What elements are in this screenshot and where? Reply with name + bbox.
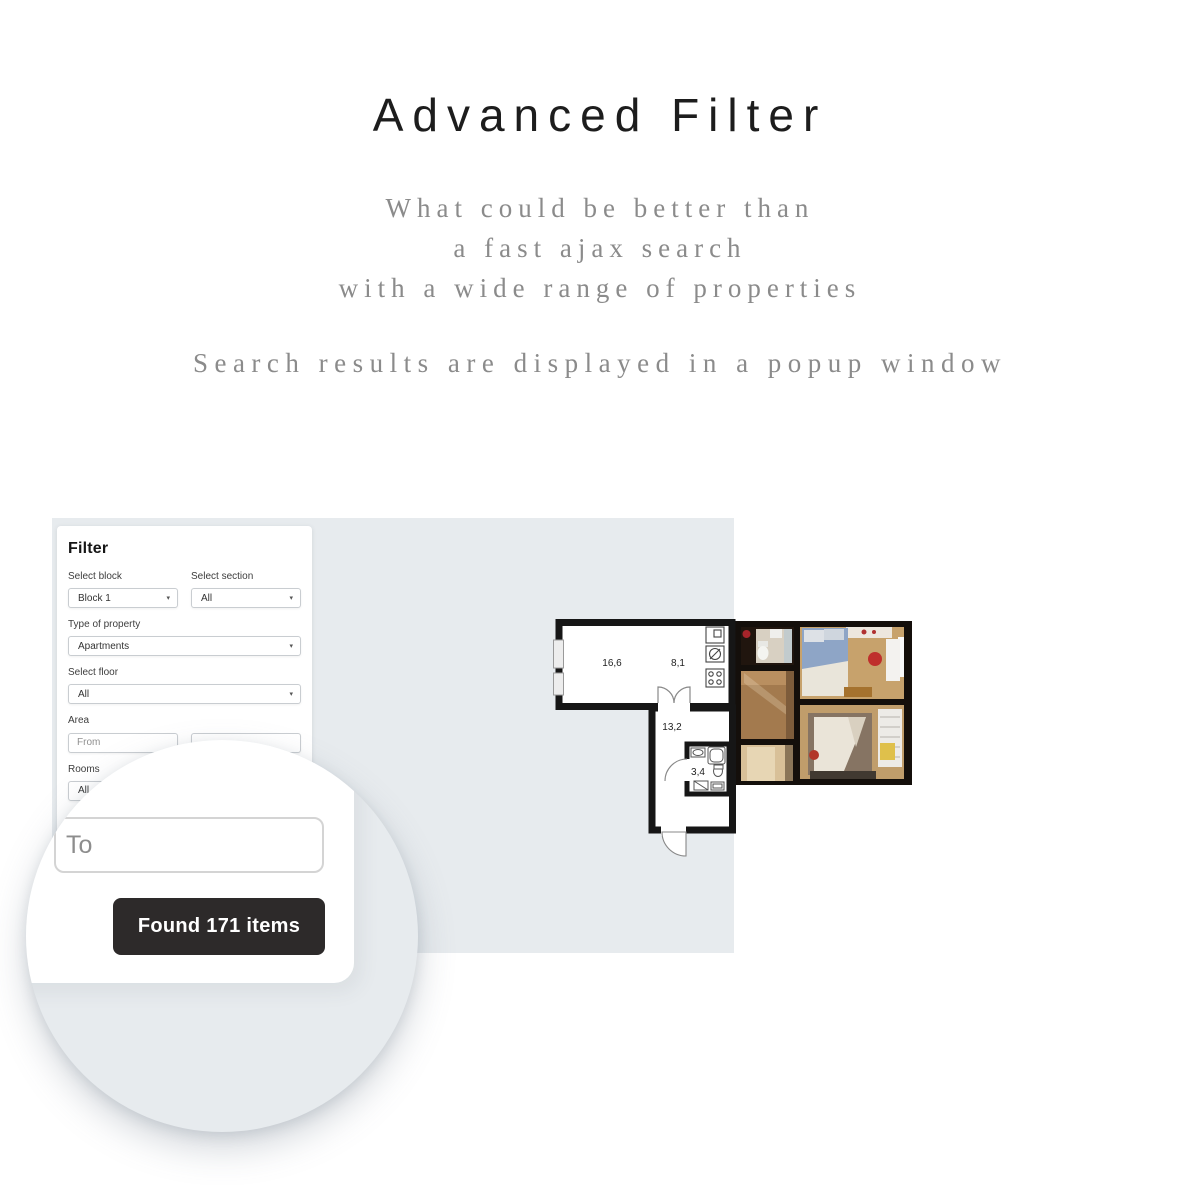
select-floor-dropdown[interactable]: All ▾ <box>68 684 301 704</box>
floorplan-drawn-section <box>554 623 733 857</box>
field-select-floor: Select floor All ▾ <box>68 667 301 704</box>
hero-subtitle-line: with a wide range of properties <box>0 268 1200 308</box>
living-room-area-label: 16,6 <box>602 658 622 669</box>
found-items-button[interactable]: Found 171 items <box>113 898 325 955</box>
magnified-area-to-input[interactable] <box>54 817 324 873</box>
field-select-block: Select block Block 1 ▾ <box>68 571 178 608</box>
property-type-value: Apartments <box>78 641 129 652</box>
floorplan-rendered-section <box>731 621 912 785</box>
hero-subtitle-line: What could be better than <box>0 188 1200 228</box>
select-block-value: Block 1 <box>78 593 111 604</box>
select-block-label: Select block <box>68 571 178 582</box>
property-type-dropdown[interactable]: Apartments ▾ <box>68 636 301 656</box>
select-section-value: All <box>201 593 212 604</box>
kitchen-area-label: 8,1 <box>671 658 685 669</box>
chevron-down-icon: ▾ <box>289 595 293 602</box>
field-select-section: Select section All ▾ <box>191 571 301 608</box>
chevron-down-icon: ▾ <box>289 643 293 650</box>
select-block-dropdown[interactable]: Block 1 ▾ <box>68 588 178 608</box>
chevron-down-icon: ▾ <box>289 691 293 698</box>
filter-heading: Filter <box>68 540 301 558</box>
select-floor-label: Select floor <box>68 667 301 678</box>
hallway-area-label: 13,2 <box>662 722 682 733</box>
magnifier-lens: Found 171 items <box>26 740 418 1132</box>
hero-subtitle: What could be better than a fast ajax se… <box>0 188 1200 308</box>
bathroom-area-label: 3,4 <box>691 767 705 778</box>
select-section-label: Select section <box>191 571 301 582</box>
chevron-down-icon: ▾ <box>166 595 170 602</box>
property-type-label: Type of property <box>68 619 301 630</box>
select-section-dropdown[interactable]: All ▾ <box>191 588 301 608</box>
select-floor-value: All <box>78 689 89 700</box>
page-title: Advanced Filter <box>0 88 1200 142</box>
field-property-type: Type of property Apartments ▾ <box>68 619 301 656</box>
floor-plan: 16,6 8,1 13,2 3,4 <box>548 613 916 863</box>
hero-subtitle-line: a fast ajax search <box>0 228 1200 268</box>
hero-section: Advanced Filter What could be better tha… <box>0 0 1200 379</box>
area-label: Area <box>68 715 301 726</box>
hero-tagline: Search results are displayed in a popup … <box>0 348 1200 379</box>
